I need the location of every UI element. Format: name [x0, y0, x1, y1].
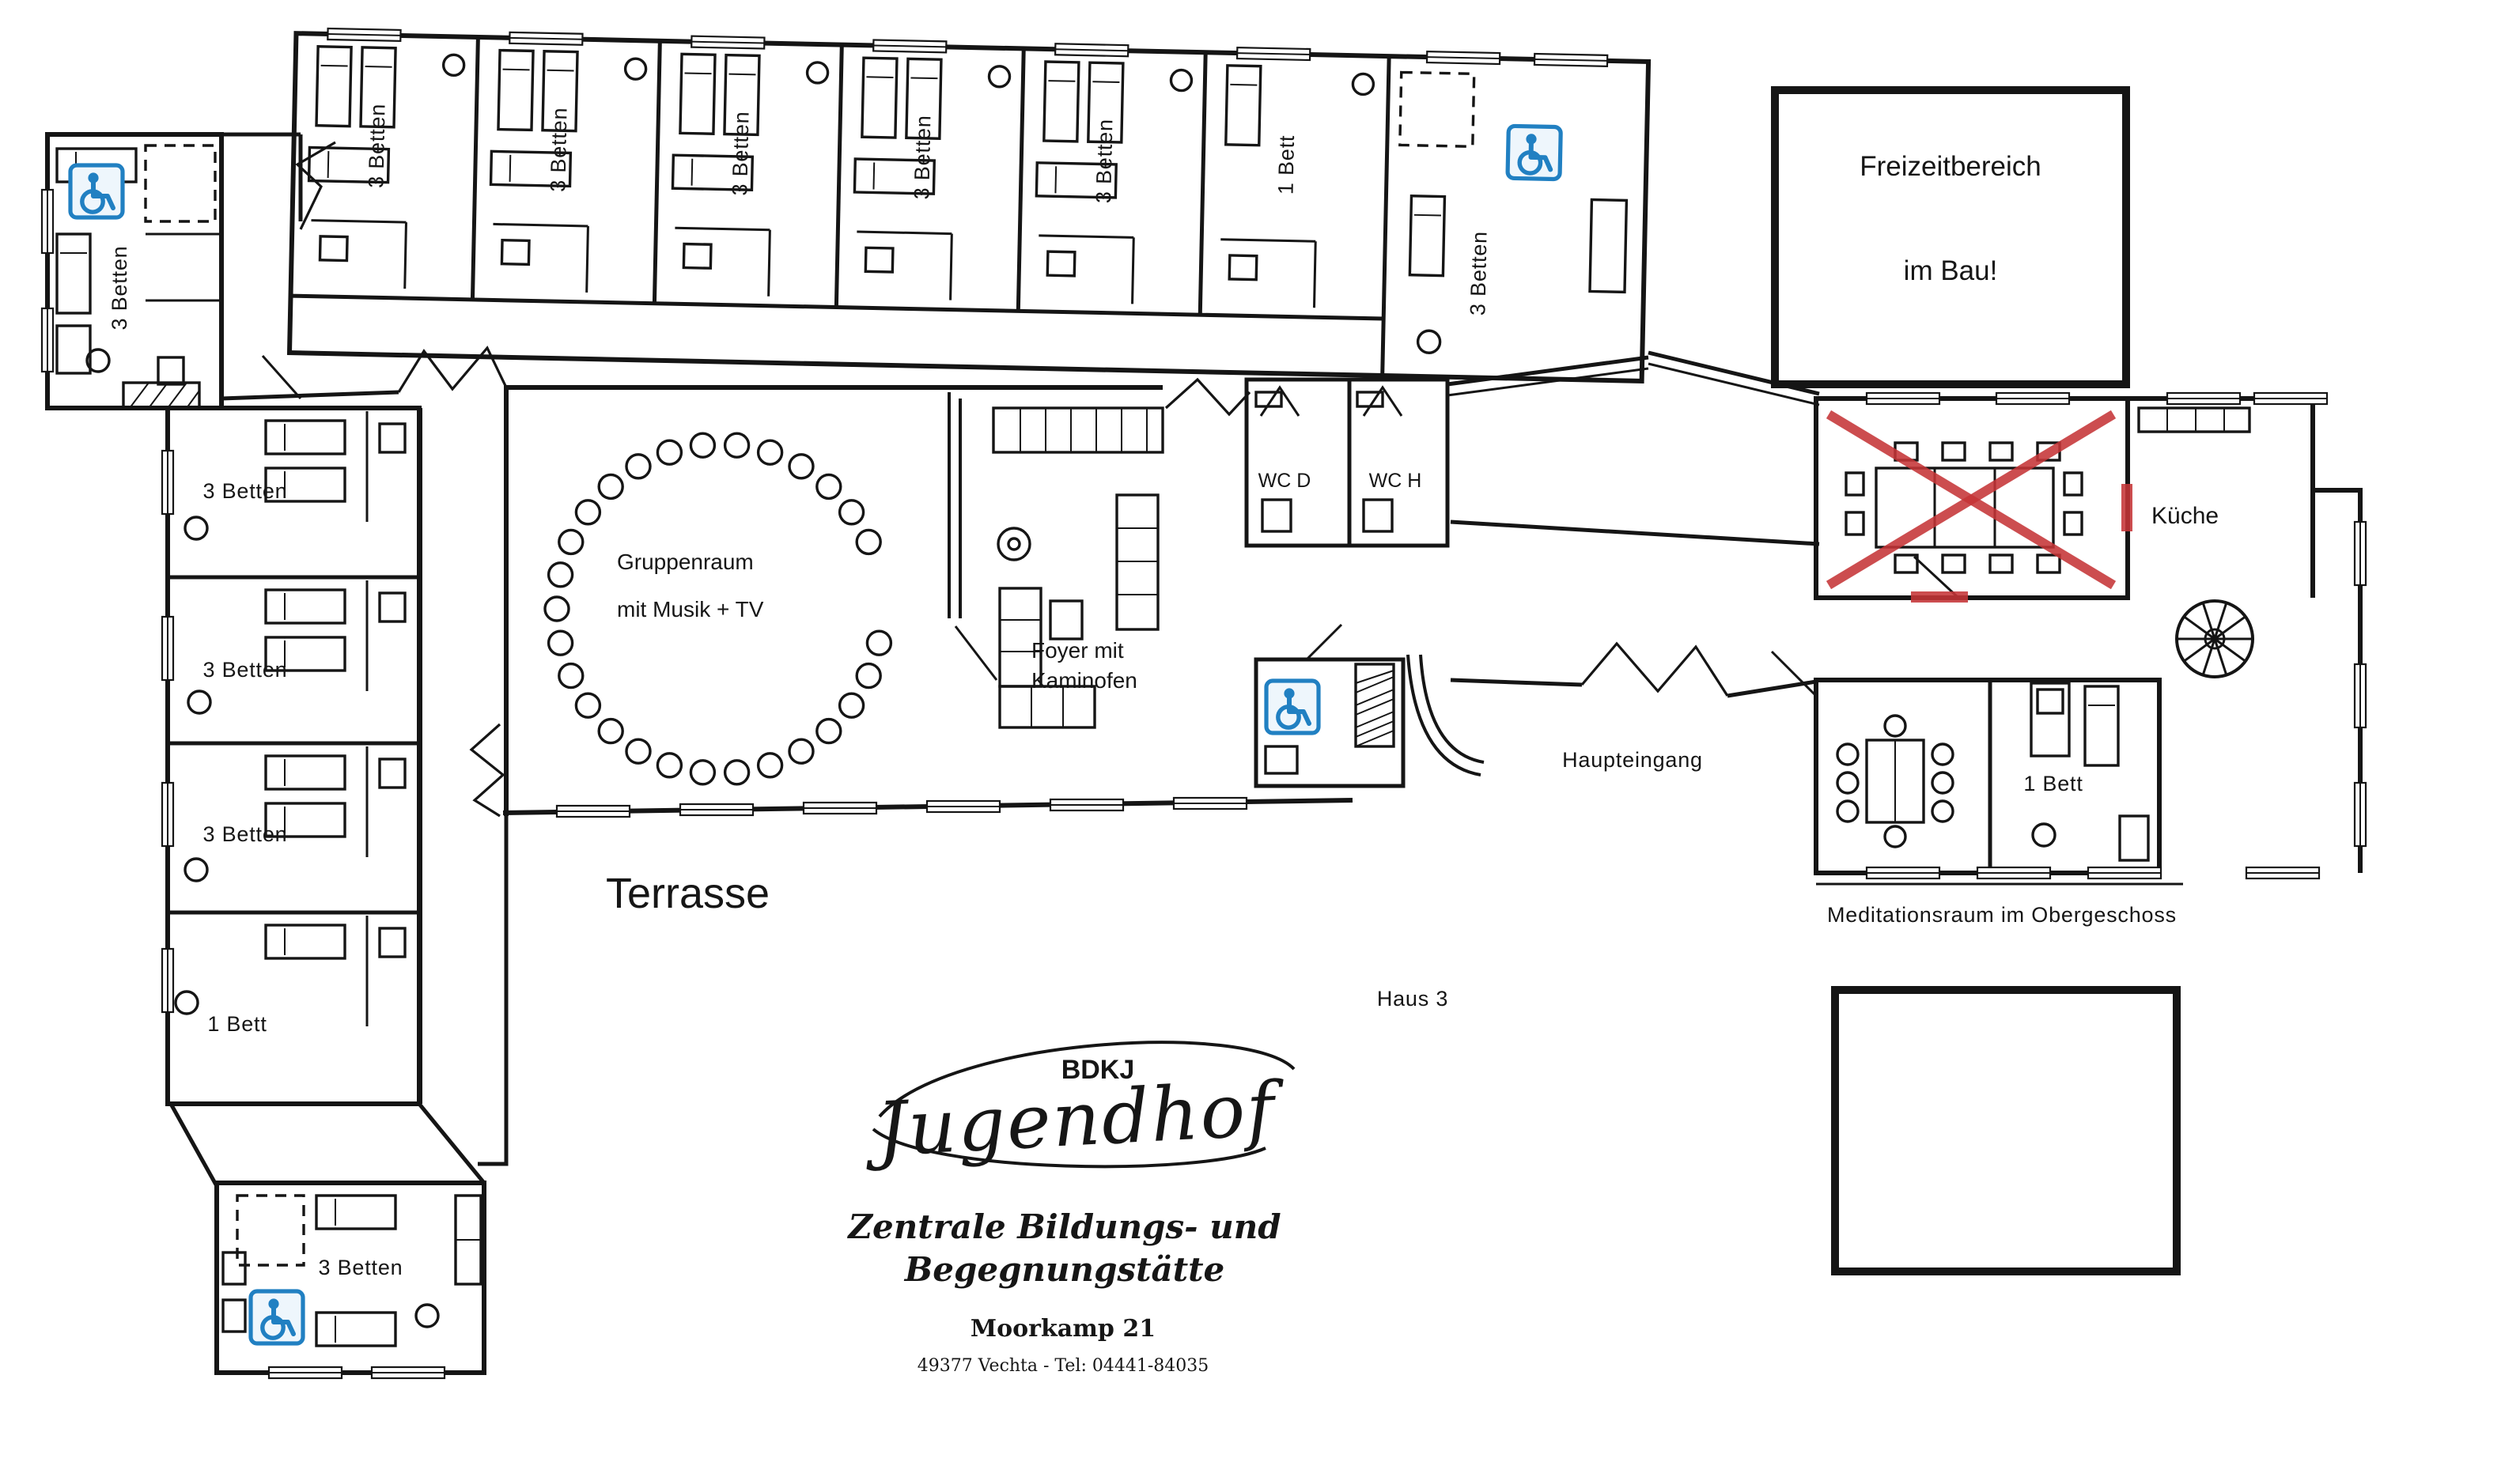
- meditation-chairs-item: [1837, 744, 1858, 765]
- room-top-left-accessible: 3 Betten: [42, 134, 301, 408]
- haupteingang-label: Haupteingang: [1562, 748, 1703, 772]
- terrasse-label: Terrasse: [606, 870, 770, 917]
- left-wing-furniture: [176, 411, 405, 1026]
- room-label: 3 Betten: [203, 658, 288, 682]
- chair-circle-item: [857, 664, 880, 688]
- left-bedroom-wing: 3 Betten 3 Betten 3 Betten 1 Bett: [162, 408, 419, 1104]
- haus3-label: Haus 3: [1377, 987, 1448, 1011]
- room-label: 1 Bett: [207, 1012, 267, 1036]
- dining-chairs-item: [2064, 473, 2082, 495]
- meditation-chairs-item: [1932, 773, 1953, 793]
- room-label: 3 Betten: [728, 111, 753, 196]
- wheelchair-icon: [251, 1291, 303, 1343]
- room-label: 1 Bett: [2023, 772, 2083, 795]
- room-label: 1 Bett: [1273, 134, 1299, 195]
- room-label: 3 Betten: [546, 107, 571, 192]
- meditation-chairs-item: [1885, 826, 1905, 847]
- wheelchair-icon: [1266, 681, 1319, 733]
- room-label: 3 Betten: [910, 115, 935, 200]
- freizeitbereich-label: im Bau!: [1904, 255, 1998, 286]
- chair-circle-item: [817, 474, 841, 498]
- meditation-chairs-item: [1837, 801, 1858, 822]
- chair-circle-item: [857, 530, 880, 553]
- chair-circle-item: [657, 440, 681, 464]
- meditation-chairs-item: [1932, 801, 1953, 822]
- dining-chairs-item: [1846, 473, 1864, 495]
- meditation-chairs-item: [1837, 773, 1858, 793]
- room-label: 3 Betten: [319, 1256, 403, 1279]
- logo-block: BDKJ Jugendhof Zentrale Bildungs- und Be…: [846, 1042, 1294, 1376]
- chair-circle-item: [545, 597, 569, 621]
- chair-circle-item: [840, 693, 864, 717]
- logo-city-tel: 49377 Vechta - Tel: 04441-84035: [918, 1356, 1209, 1376]
- dining-chairs-item: [1943, 555, 1965, 572]
- chair-circle-item: [626, 455, 650, 478]
- room-bottom-left-accessible: 3 Betten: [217, 1183, 484, 1378]
- red-door-mark: [1911, 591, 1968, 603]
- chair-circle-item: [789, 739, 813, 763]
- chair-circle-item: [759, 440, 782, 464]
- wheelchair-icon: [1508, 126, 1561, 179]
- room-label: 3 Betten: [364, 104, 389, 189]
- freizeitbereich-box: Freizeitbereich im Bau!: [1775, 90, 2126, 384]
- wc-h-label: WC H: [1369, 470, 1422, 492]
- chair-circle-item: [559, 530, 583, 553]
- red-door-mark: [2121, 484, 2132, 531]
- chair-circle-item: [817, 720, 841, 743]
- chair-circle-item: [725, 433, 749, 457]
- room-label: 3 Betten: [1466, 231, 1491, 316]
- chair-circle-item: [576, 501, 600, 524]
- gruppenraum-label: mit Musik + TV: [617, 597, 764, 621]
- chair-circle-item: [789, 455, 813, 478]
- dining-chairs-item: [1990, 555, 2012, 572]
- meditation-wing: 1 Bett: [1772, 652, 2319, 884]
- chair-circle-item: [725, 761, 749, 784]
- chair-circle-item: [576, 693, 600, 717]
- accessible-wc: [1256, 625, 1403, 786]
- chair-circle-item: [691, 761, 714, 784]
- dining-chairs-item: [1943, 443, 1965, 460]
- room-top-right-accessible: 3 Betten: [1395, 72, 1629, 357]
- wc-d-label: WC D: [1258, 470, 1311, 492]
- floor-plan-svg: 3 Betten 3 Betten 3 Betten 3 Betten 3 Be…: [0, 0, 2520, 1481]
- top-bedroom-wing: 3 Betten 3 Betten 3 Betten 3 Betten 3 Be…: [289, 28, 1648, 381]
- chair-circle-item: [867, 631, 891, 655]
- chair-circle-item: [549, 563, 573, 587]
- window-band-south: [503, 798, 1353, 817]
- hatched-window: [123, 383, 199, 408]
- chair-circle-item: [549, 631, 573, 655]
- meditation-chairs-item: [1932, 744, 1953, 765]
- hatched-strip: [1356, 664, 1394, 746]
- dining-chairs-item: [1846, 512, 1864, 535]
- chair-circle-item: [626, 739, 650, 763]
- chair-circle-item: [691, 433, 714, 457]
- wheelchair-icon: [70, 165, 123, 217]
- logo-line1: Zentrale Bildungs- und: [846, 1207, 1281, 1246]
- logo-line2: Begegnungstätte: [904, 1250, 1224, 1289]
- room-label: 3 Betten: [203, 822, 288, 846]
- logo-street: Moorkamp 21: [971, 1315, 1156, 1343]
- chair-circle-item: [840, 501, 864, 524]
- meditationsraum-note: Meditationsraum im Obergeschoss: [1827, 903, 2177, 927]
- dining-chairs-item: [2064, 512, 2082, 535]
- gruppenraum-label: Gruppenraum: [617, 550, 754, 574]
- wc-block: WC D WC H: [1247, 380, 1447, 546]
- dining-chairs-item: [2038, 555, 2060, 572]
- gruppenraum: Gruppenraum mit Musik + TV: [471, 387, 997, 816]
- foyer-label: Kaminofen: [1031, 668, 1137, 693]
- room-label: 3 Betten: [1092, 119, 1117, 204]
- meditation-chairs-item: [1885, 716, 1905, 736]
- kitchen: Küche: [2128, 393, 2366, 873]
- foyer-label: Foyer mit: [1031, 638, 1124, 663]
- chair-circle-item: [599, 720, 622, 743]
- dining-room-crossed: [1816, 393, 2132, 603]
- freizeitbereich-label: Freizeitbereich: [1860, 151, 2041, 182]
- dining-chairs-item: [1990, 443, 2012, 460]
- kueche-label: Küche: [2151, 503, 2219, 529]
- room-label: 3 Betten: [203, 479, 288, 503]
- spiral-staircase: [2177, 601, 2253, 677]
- floor-plan: 3 Betten 3 Betten 3 Betten 3 Betten 3 Be…: [0, 0, 2520, 1481]
- haupteingang-entry: Haupteingang: [1451, 644, 1816, 772]
- room-label: 3 Betten: [108, 246, 131, 331]
- chair-circle-item: [559, 664, 583, 688]
- empty-box: [1835, 990, 2177, 1271]
- chair-circle-item: [657, 754, 681, 777]
- chair-circle-item: [759, 754, 782, 777]
- chair-circle-item: [599, 474, 622, 498]
